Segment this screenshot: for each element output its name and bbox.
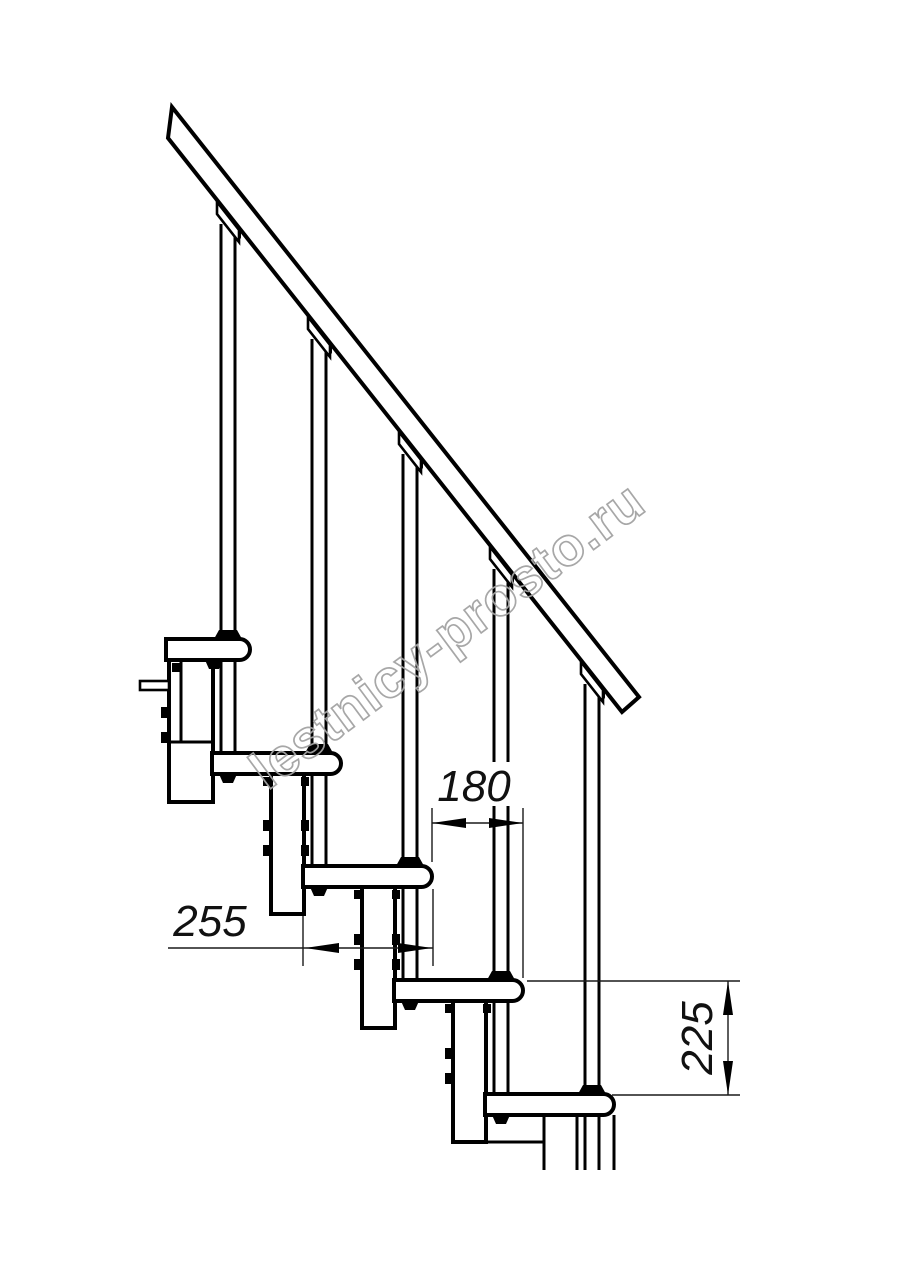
bolt-tab: [392, 890, 400, 899]
bolt-tab: [445, 1004, 453, 1013]
dimension-label-180: 180: [437, 762, 511, 811]
bolt-tab: [301, 845, 309, 856]
foot-flange: [214, 630, 242, 639]
baluster: [403, 454, 417, 980]
tread: [303, 866, 432, 887]
nut: [492, 1115, 510, 1124]
nut: [310, 887, 328, 896]
bolt-tab: [483, 1004, 491, 1013]
dimension-step-rise: 225: [527, 981, 740, 1095]
baluster: [221, 224, 235, 753]
baluster: [494, 569, 508, 1094]
arrow-up: [723, 981, 733, 1015]
nut: [219, 774, 237, 783]
arrow-left: [305, 943, 339, 953]
staircase-drawing: 180 255 225 lestnicy-prosto.ru: [0, 0, 914, 1280]
bolt-tab: [161, 707, 169, 718]
dimension-label-225: 225: [673, 1001, 722, 1076]
baluster: [312, 339, 326, 866]
dimension-label-255: 255: [172, 897, 247, 946]
bolt-tab: [263, 845, 271, 856]
watermark-text: lestnicy-prosto.ru: [239, 470, 656, 800]
foot-flange: [487, 971, 515, 980]
foot-flange: [396, 857, 424, 866]
nut: [401, 1001, 419, 1010]
foot-flange: [578, 1085, 606, 1094]
module: [544, 1115, 614, 1170]
bolt-tab: [301, 820, 309, 831]
bolt-tab: [172, 663, 180, 672]
arrow-right: [489, 818, 523, 828]
bolt-tab: [445, 1073, 453, 1084]
bolt-tab: [161, 732, 169, 743]
bolt-tab: [392, 959, 400, 970]
bolt-tab: [354, 934, 362, 945]
arrow-down: [723, 1061, 733, 1095]
tread: [485, 1094, 614, 1115]
arrow-right: [398, 943, 432, 953]
tread: [166, 639, 250, 660]
bolt-tab: [354, 959, 362, 970]
bolt-tab: [263, 820, 271, 831]
tread: [394, 980, 523, 1001]
technical-drawing-page: 180 255 225 lestnicy-prosto.ru: [0, 0, 914, 1280]
bolt-tab: [354, 890, 362, 899]
module: [354, 887, 400, 1028]
wall-bracket: [140, 681, 169, 690]
bolt-tab: [445, 1048, 453, 1059]
arrow-left: [432, 818, 466, 828]
